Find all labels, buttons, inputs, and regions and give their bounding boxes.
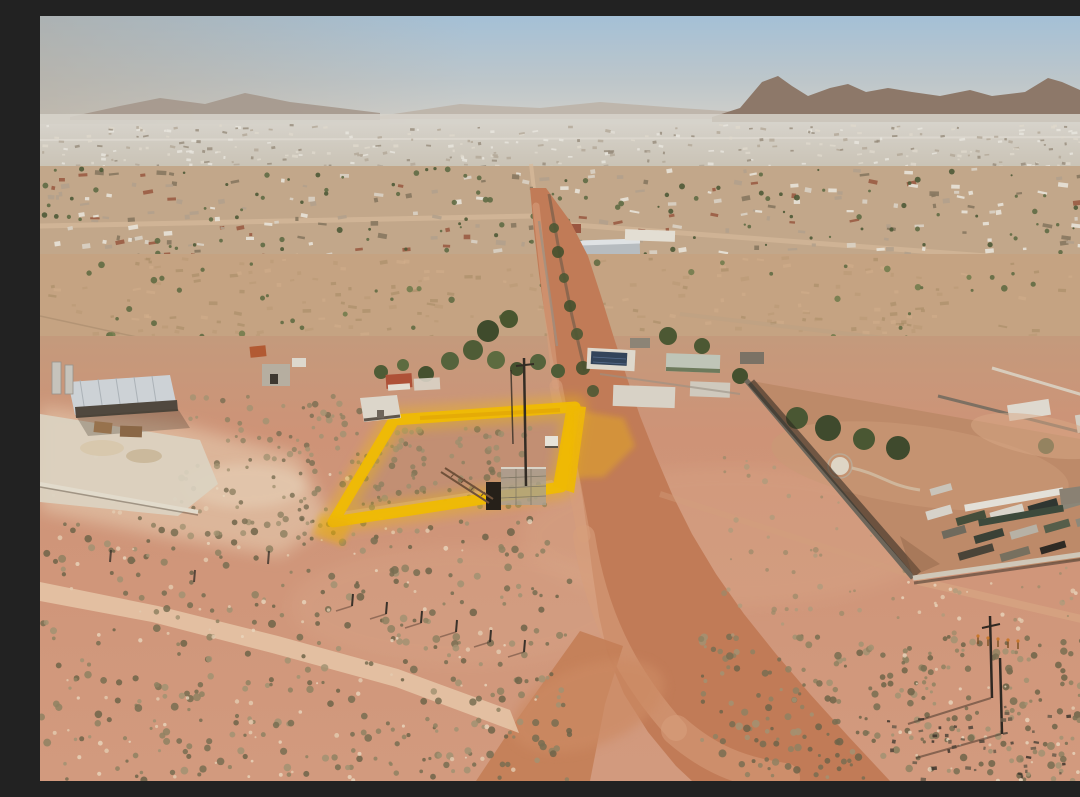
scrub-right-sparse-item [1059, 572, 1062, 575]
scrub-right-low-item [1009, 758, 1014, 763]
scrub-right-low-item [1038, 644, 1042, 648]
city-specks-item [909, 133, 913, 136]
sprawl-trees-item [240, 208, 243, 211]
scrub-left-item [158, 749, 161, 752]
field-texture-item [720, 298, 724, 302]
debris-bottom-right-item [1024, 764, 1028, 767]
scrub-left-item [452, 633, 460, 641]
scrub-left-item [496, 708, 500, 712]
scrub-right-low-item [1060, 648, 1067, 655]
orange-gate-tip-4 [1006, 638, 1009, 641]
sprawl-buildings-item [194, 250, 200, 253]
scrub-right-low-item [922, 680, 926, 684]
city-specks-item [920, 133, 922, 135]
field-texture-item [423, 277, 429, 281]
scrub-right-low-item [1060, 668, 1065, 673]
scrub-upper-left-item [282, 458, 286, 462]
field-texture-item [93, 332, 100, 336]
city-specks-item [772, 145, 777, 147]
scrub-right-sparse-item [781, 622, 784, 625]
city-specks-item [892, 135, 897, 137]
city-specks-item [111, 159, 113, 161]
field-trees-item [151, 320, 157, 326]
scrub-left-item [135, 775, 139, 779]
scrub-upper-left-item [229, 488, 236, 495]
field-texture-item [649, 258, 653, 261]
scrub-left-item [132, 559, 135, 562]
city-specks-item [577, 139, 580, 142]
scrub-right-low-item [826, 775, 830, 779]
city-specks-item [660, 132, 662, 135]
pale-specks-right-item [1025, 741, 1028, 744]
scrub-left-item [306, 686, 313, 693]
city-specks-item [109, 133, 112, 135]
scrub-left-item [444, 660, 448, 664]
pale-specks-left-item [402, 725, 405, 728]
sprawl-trees-item [458, 222, 461, 225]
field-texture-item [717, 274, 722, 277]
city-specks-item [191, 140, 197, 142]
scrub-left-item [228, 765, 232, 769]
scrub-right-sparse-item [897, 616, 900, 619]
orange-gate-tip-2 [986, 636, 989, 639]
scrub-left-item [389, 545, 392, 548]
field-texture-item [436, 270, 444, 273]
scrub-right-low-item [816, 680, 823, 687]
sprawl-buildings-item [48, 195, 54, 200]
scrub-right-sparse-item [953, 588, 958, 593]
field-texture-item [798, 303, 802, 307]
sprawl-trees-item [324, 188, 328, 192]
scrub-left-item [516, 521, 520, 525]
field-texture-item [248, 271, 252, 275]
scrub-right-low-item [979, 762, 984, 767]
scrub-left-item [206, 656, 212, 662]
city-specks-item [471, 141, 474, 143]
field-trees-item [86, 270, 91, 275]
city-specks-item [407, 159, 410, 161]
field-texture-item [843, 271, 851, 275]
sprawl-trees-item [901, 203, 906, 208]
sprawl-trees-item [477, 175, 482, 180]
city-specks-item [751, 159, 754, 161]
scrub-left-item [531, 587, 534, 590]
scrub-left-item [269, 677, 274, 682]
scrub-left-item [336, 689, 340, 693]
lot-scrub-item [493, 445, 499, 451]
scrub-left-item [315, 612, 320, 617]
scrub-right-sparse-item [795, 608, 798, 611]
city-specks-item [609, 150, 615, 153]
scrub-right-low-item [1047, 742, 1055, 750]
scrub-right-sparse-item [767, 535, 770, 538]
scrub-left-item [229, 732, 235, 738]
city-specks-item [195, 129, 199, 131]
sprawl-trees-item [922, 243, 925, 246]
sprawl-buildings-item [185, 215, 190, 220]
scrub-left-item [317, 641, 321, 645]
field-trees-item [375, 289, 378, 292]
debris-bottom-right-item [918, 718, 924, 720]
scrub-right-low-item [729, 701, 734, 706]
scrub-left-item [288, 687, 293, 692]
pale-specks-left-item [97, 633, 101, 637]
sprawl-trees-item [670, 247, 675, 252]
scrub-left-item [138, 516, 142, 520]
scrub-right-low-item [925, 687, 928, 690]
city-specks-item [598, 140, 604, 143]
scrub-right-low-item [1052, 724, 1058, 730]
scrub-upper-left-item [282, 496, 286, 500]
scrub-left-item [50, 627, 57, 634]
pale-specks-left-item [287, 554, 290, 557]
sprawl-trees-item [1043, 194, 1046, 197]
city-specks-item [453, 149, 455, 152]
scrub-right-sparse-item [839, 611, 844, 616]
pale-specks-left-item [77, 696, 80, 699]
scrub-left-item [397, 528, 403, 534]
scrub-upper-left-item [276, 431, 281, 436]
sprawl-trees-item [759, 172, 763, 176]
scrub-right-low-item [739, 761, 745, 767]
lot-scrub-item [487, 446, 492, 451]
roadside-tree-5 [571, 328, 583, 340]
scrub-left-item [567, 732, 572, 737]
scrub-right-sparse-item [857, 608, 862, 613]
sprawl-trees-item [987, 242, 992, 247]
sprawl-trees-item [315, 173, 320, 178]
pale-specks-left-item [207, 542, 210, 545]
city-specks-item [482, 157, 485, 160]
city-specks-item [759, 138, 763, 141]
lot-scrub-item [415, 490, 420, 495]
field-texture-item [127, 299, 130, 302]
field-texture-item [936, 288, 940, 291]
fence-post-1 [352, 594, 353, 606]
scrub-right-sparse-item [837, 501, 839, 503]
scrub-right-low-item [1068, 651, 1073, 656]
sprawl-trees-item [693, 236, 696, 239]
scrub-left-item [68, 686, 71, 689]
scrub-right-low-item [794, 744, 801, 751]
sprawl-trees-item [765, 196, 770, 201]
sprawl-trees-item [337, 227, 343, 233]
scrub-left-item [502, 602, 506, 606]
pale-specks-left-item [279, 740, 282, 743]
scrub-left-item [43, 550, 50, 557]
scrub-left-item [558, 687, 564, 693]
city-specks-item [202, 150, 205, 153]
sprawl-buildings-item [295, 217, 298, 221]
scrub-left-item [189, 580, 194, 585]
silo-b [65, 365, 73, 394]
scrub-right-low-item [975, 711, 979, 715]
city-specks-item [353, 144, 359, 147]
lot-shed-door [377, 410, 384, 418]
scrub-left-item [518, 593, 522, 597]
scrub-right-low-item [752, 759, 756, 763]
scrub-right-low-item [880, 753, 886, 759]
field-trees-item [390, 297, 393, 300]
tall-tree-a [477, 320, 499, 342]
field-texture-item [322, 298, 325, 302]
scrub-upper-left-item [240, 438, 245, 443]
scrub-right-sparse-item [1065, 567, 1068, 570]
field-texture-item [901, 320, 906, 324]
scrub-left-item [498, 662, 503, 667]
pale-specks-left-item [112, 510, 115, 513]
field-texture-item [678, 294, 685, 298]
sprawl-buildings-item [156, 170, 166, 175]
scrub-left-item [408, 545, 412, 549]
pale-specks-left-item [173, 775, 177, 779]
sprawl-buildings-item [954, 191, 959, 194]
scrub-right-sparse-item [783, 550, 788, 555]
lot-scrub-item [412, 477, 415, 480]
field-texture-item [662, 269, 666, 272]
sprawl-buildings-item [145, 240, 149, 244]
pale-specks-left-item [390, 673, 393, 676]
pale-specks-left-item [58, 535, 63, 540]
scrub-right-sparse-item [1021, 586, 1024, 589]
pale-specks-left-item [211, 635, 215, 639]
lot-scrub-item [389, 463, 396, 470]
field-trees-item [343, 312, 348, 317]
pale-specks-right-item [950, 767, 952, 769]
scrub-right-low-item [704, 645, 707, 648]
lot-scrub-item [421, 456, 427, 462]
scrub-upper-left-item [299, 499, 303, 503]
sprawl-trees-item [829, 236, 831, 238]
scrub-left-item [557, 695, 561, 699]
scrub-right-low-item [967, 734, 974, 741]
scrub-left-item [217, 758, 225, 766]
scrub-left-item [181, 767, 189, 775]
pale-specks-right-item [918, 610, 922, 614]
scrub-right-low-item [899, 688, 904, 693]
scrub-left-item [84, 535, 92, 543]
sprawl-trees-item [716, 186, 720, 190]
pale-specks-left-item [77, 755, 81, 759]
scrub-right-low-item [1072, 715, 1077, 720]
scrub-right-low-item [701, 675, 704, 678]
city-specks-item [196, 140, 201, 143]
city-specks-item [101, 158, 106, 161]
scrub-left-item [246, 680, 251, 685]
debris-bottom-right-item [931, 766, 937, 770]
scrub-right-sparse-item [747, 474, 751, 478]
city-specks-item [1004, 138, 1007, 141]
scrub-left-item [261, 732, 266, 737]
sprawl-buildings-item [983, 222, 989, 226]
scrub-left-item [430, 774, 436, 780]
city-specks-item [663, 152, 665, 155]
scrub-left-item [419, 770, 423, 774]
city-specks-item [691, 135, 694, 137]
scrub-upper-left-item [315, 486, 322, 493]
debris-bottom-right-item [1047, 715, 1052, 718]
scrub-left-item [273, 722, 279, 728]
scrub-right-low-item [1027, 657, 1031, 661]
fence-post-9 [268, 551, 269, 564]
city-specks-item [769, 139, 774, 142]
scrub-left-item [305, 755, 308, 758]
scrub-right-low-item [933, 702, 937, 706]
scrub-right-sparse-item [745, 460, 747, 462]
field-texture-item [212, 330, 217, 334]
scrub-left-item [116, 679, 122, 685]
sprawl-trees-item [433, 167, 436, 170]
scrub-upper-left-item [339, 471, 342, 474]
scrub-left-item [497, 776, 501, 780]
lot-scrub-item [484, 474, 491, 481]
scrub-left-item [524, 679, 528, 683]
scrub-right-low-item [893, 746, 898, 751]
sprawl-buildings-item [215, 217, 220, 222]
sprawl-trees-item [889, 228, 893, 232]
sprawl-trees-item [460, 226, 462, 228]
scrub-left-item [151, 523, 156, 528]
lot-scrub-item [527, 426, 532, 431]
scrub-left-item [469, 698, 476, 705]
scrub-left-item [176, 615, 181, 620]
scrub-right-low-item [953, 768, 960, 775]
city-specks-item [42, 151, 44, 154]
field-texture-item [836, 285, 841, 289]
scrub-upper-left-item [214, 531, 220, 537]
pale-specks-left-item [316, 682, 318, 684]
sprawl-buildings-item [529, 225, 534, 230]
sprawl-trees-item [1015, 195, 1018, 198]
scrub-upper-left-item [264, 521, 271, 528]
scrub-left-item [133, 753, 139, 759]
scrub-left-item [535, 553, 539, 557]
field-texture-item [705, 321, 712, 325]
pale-specks-left-item [450, 757, 454, 761]
sprawl-buildings-item [951, 185, 960, 189]
sprawl-trees-item [440, 230, 443, 233]
scrub-right-low-item [969, 639, 976, 646]
city-specks-item [568, 126, 573, 129]
field-trees-item [1001, 285, 1008, 292]
scrub-upper-left-item [331, 414, 334, 417]
scrub-right-sparse-item [835, 527, 838, 530]
city-specks-item [1013, 148, 1019, 150]
scrub-left-item [504, 734, 508, 738]
scrub-right-sparse-item [787, 494, 791, 498]
field-texture-item [270, 260, 273, 263]
scrub-upper-left-item [281, 404, 285, 408]
field-trees-item [300, 325, 305, 330]
city-specks-item [345, 131, 348, 134]
sprawl-trees-item [193, 243, 197, 247]
scrub-right-low-item [988, 760, 995, 767]
field-trees-item [971, 289, 974, 292]
sprawl-trees-item [54, 214, 59, 219]
scrub-right-low-item [771, 774, 775, 778]
scrub-right-low-item [802, 683, 806, 687]
sprawl-trees-item [476, 190, 480, 194]
sprawl-trees-item [219, 239, 223, 243]
scrub-right-low-item [717, 649, 723, 655]
scrub-left-item [432, 635, 440, 643]
pale-specks-left-item [249, 720, 254, 725]
scrub-upper-left-item [277, 511, 284, 518]
gravel-pile-a [80, 440, 124, 456]
field-texture-item [430, 299, 438, 302]
scrub-left-item [56, 662, 62, 668]
city-specks-item [411, 139, 413, 141]
scrub-upper-left-item [302, 532, 307, 537]
pale-specks-left-item [247, 775, 250, 778]
field-texture-item [331, 282, 336, 285]
scrub-left-item [403, 659, 408, 664]
pale-specks-right-item [987, 686, 990, 689]
scrub-right-low-item [946, 717, 950, 721]
scrub-left-item [539, 594, 542, 597]
field-texture-item [742, 293, 746, 297]
field-texture-item [640, 328, 645, 331]
scrub-right-low-item [1005, 665, 1013, 673]
sprawl-trees-item [99, 168, 103, 172]
scrub-right-low-item [1071, 737, 1075, 741]
scrub-right-sparse-item [1059, 600, 1065, 606]
sprawl-trees-item [287, 178, 290, 181]
scrub-left-item [321, 664, 328, 671]
city-specks-item [87, 135, 92, 138]
scrub-left-item [297, 675, 301, 679]
field-texture-item [882, 332, 887, 335]
scrub-left-item [556, 632, 563, 639]
scrub-left-item [386, 721, 390, 725]
sprawl-trees-item [1045, 229, 1050, 234]
scrub-upper-left-item [226, 438, 230, 442]
scrub-upper-left-item [298, 451, 302, 455]
scrub-right-sparse-item [765, 568, 769, 572]
scrub-right-low-item [825, 758, 831, 764]
city-specks-item [790, 150, 793, 152]
scrub-right-low-item [924, 676, 927, 679]
scrub-right-low-item [1035, 689, 1040, 694]
city-specks-item [393, 144, 398, 147]
tree-row-2 [397, 359, 409, 371]
lot-scrub-item [411, 473, 415, 477]
scrub-left-item [376, 728, 382, 734]
scrub-left-item [163, 738, 170, 745]
pale-specks-left-item [237, 545, 241, 549]
sprawl-buildings-item [249, 233, 252, 236]
scrub-left-item [504, 563, 512, 571]
lot-scrub-item [422, 462, 426, 466]
sprawl-trees-item [169, 245, 172, 248]
lot-scrub-item [483, 433, 489, 439]
city-specks-item [478, 127, 481, 129]
pale-specks-left-item [460, 684, 462, 686]
scrub-left-item [424, 646, 429, 651]
city-specks-item [1051, 126, 1055, 129]
city-specks-item [999, 161, 1002, 163]
field-texture-item [149, 261, 152, 264]
scrub-right-low-item [810, 712, 814, 716]
pale-specks-left-item [321, 539, 323, 541]
scrub-left-item [302, 542, 306, 546]
lot-scrub-item [410, 464, 415, 469]
city-specks-item [957, 159, 959, 161]
pale-specks-left-item [327, 608, 331, 612]
city-specks-item [360, 154, 363, 157]
city-specks-item [59, 141, 64, 143]
pale-specks-left-item [204, 558, 209, 563]
